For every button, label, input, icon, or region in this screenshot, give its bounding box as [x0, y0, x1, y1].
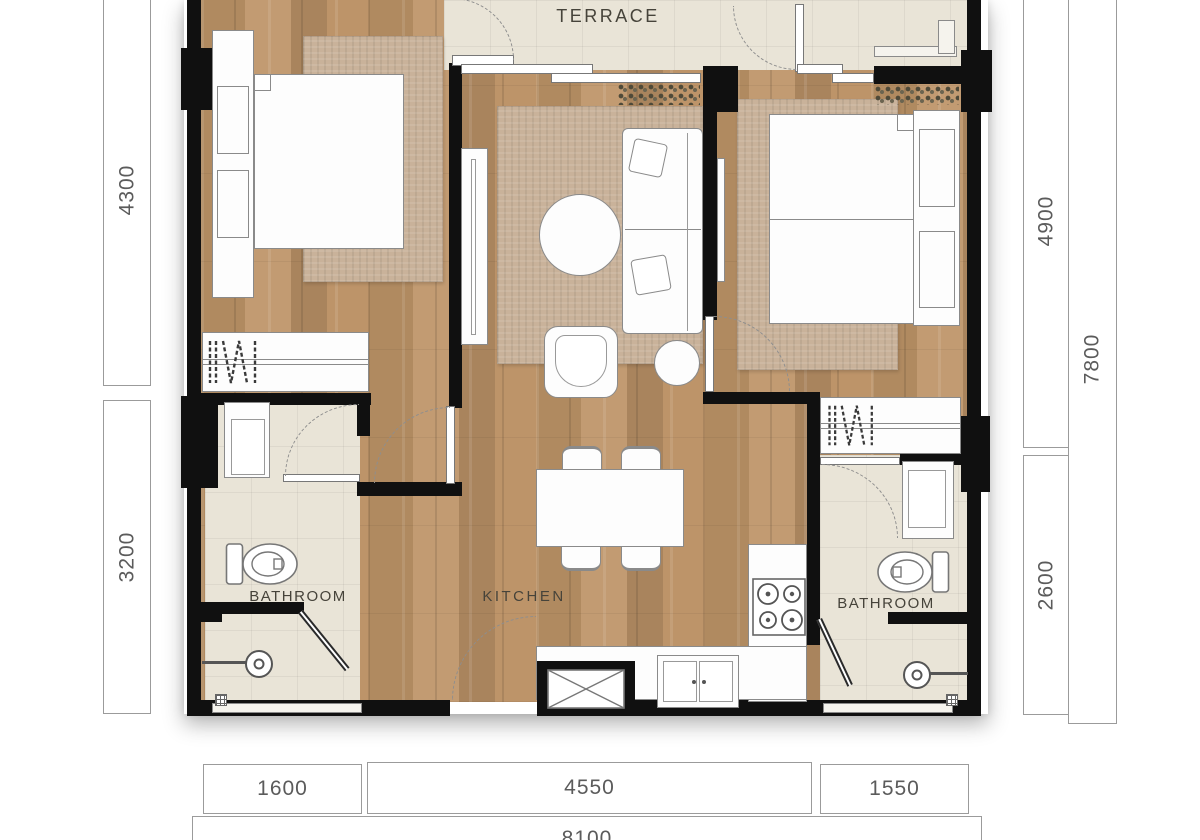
stove-icon	[752, 578, 806, 636]
floorplan-canvas: TERRACE KITCHEN BATHROOM BATHROOM 4300 3…	[0, 0, 1200, 840]
wall-pier-left-low	[187, 602, 222, 622]
sofa-pillow-bottom	[630, 254, 672, 296]
shower-head-right-icon	[901, 659, 933, 691]
wall-pier-right-top	[961, 50, 992, 112]
nightstand-left-2	[217, 170, 249, 238]
wall-bathright-shower	[888, 612, 967, 624]
shaft-x-icon	[547, 669, 625, 709]
wall-pier-left-top	[181, 48, 212, 110]
door-bedroom-right-leaf	[705, 316, 714, 392]
bathroom-right-label: BATHROOM	[834, 595, 938, 612]
dimension-right-bottom: 2600	[1023, 455, 1070, 715]
cabinet-knob-right	[702, 680, 706, 684]
sofa-living	[622, 128, 703, 334]
sofa-back-line	[687, 133, 688, 331]
nightstand-right-2	[919, 231, 955, 308]
sink-bathroom-left	[231, 419, 265, 475]
dimension-bottom-total: 8100	[192, 816, 982, 840]
sofa-seat-line	[625, 229, 701, 230]
window-bottom-left	[212, 703, 362, 713]
dimension-left-bottom: 3200	[103, 400, 151, 714]
terrace-floor	[444, 0, 967, 70]
terrace-small-box	[938, 20, 955, 54]
nightstand-left-1	[217, 86, 249, 154]
coffee-table-living	[539, 194, 621, 276]
wall-bedroomright-bottom	[703, 392, 820, 404]
kitchen-cabinet	[657, 655, 739, 708]
tv-console-line	[471, 159, 476, 335]
side-table-living	[654, 340, 700, 386]
drain-right	[946, 694, 958, 706]
dimension-right-total: 7800	[1068, 0, 1117, 724]
wardrobe-bedroom-left	[202, 332, 369, 392]
wall-pier-living-top	[703, 66, 738, 112]
terrace-label: TERRACE	[538, 6, 678, 27]
tv-panel-bedroom-right	[717, 158, 725, 282]
dimension-left-top: 4300	[103, 0, 151, 386]
dimension-bottom-left: 1600	[203, 764, 362, 814]
hanger-icon	[825, 402, 881, 449]
drain-left	[215, 694, 227, 706]
wall-hall-bottom	[357, 482, 462, 496]
sofa-pillow-top	[628, 138, 668, 178]
armchair-seat-curve	[555, 335, 607, 387]
shower-arm-left	[202, 661, 248, 664]
bathroom-left-label: BATHROOM	[246, 588, 350, 605]
bed-right-fold-line	[897, 115, 913, 131]
shower-head-left-icon	[243, 648, 275, 680]
headboard-bedroom-left	[212, 30, 254, 298]
wardrobe-bathroom-right	[820, 397, 961, 454]
dimension-right-top: 4900	[1023, 0, 1070, 448]
bed-right-center-line	[770, 219, 913, 220]
nightstand-right-1	[919, 129, 955, 207]
toilet-left-icon	[225, 540, 299, 588]
wall-kitchen-bathright	[807, 392, 820, 645]
armchair-living	[544, 326, 618, 398]
bed-bedroom-left	[254, 74, 404, 249]
sink-bathroom-right	[908, 470, 946, 528]
wall-pier-left-mid	[181, 396, 218, 488]
bed-left-fold-line	[255, 75, 271, 91]
kitchen-label: KITCHEN	[482, 588, 566, 605]
dining-table	[536, 469, 684, 547]
wall-terrace-bedroomright-band	[874, 66, 961, 84]
bed-bedroom-right	[769, 114, 914, 324]
plant-bedroom-right-icon	[875, 86, 959, 105]
plant-living-icon	[618, 84, 700, 105]
toilet-right-icon	[874, 548, 950, 596]
window-bottom-right	[823, 703, 953, 713]
dimension-bottom-right: 1550	[820, 764, 969, 814]
tv-console-living	[461, 148, 488, 345]
slider-living-panel-b	[551, 73, 701, 83]
cabinet-knob-left	[692, 680, 696, 684]
dimension-bottom-center: 4550	[367, 762, 812, 814]
hanger-icon	[207, 337, 263, 387]
slider-bedroomright-panel-b	[832, 73, 874, 83]
